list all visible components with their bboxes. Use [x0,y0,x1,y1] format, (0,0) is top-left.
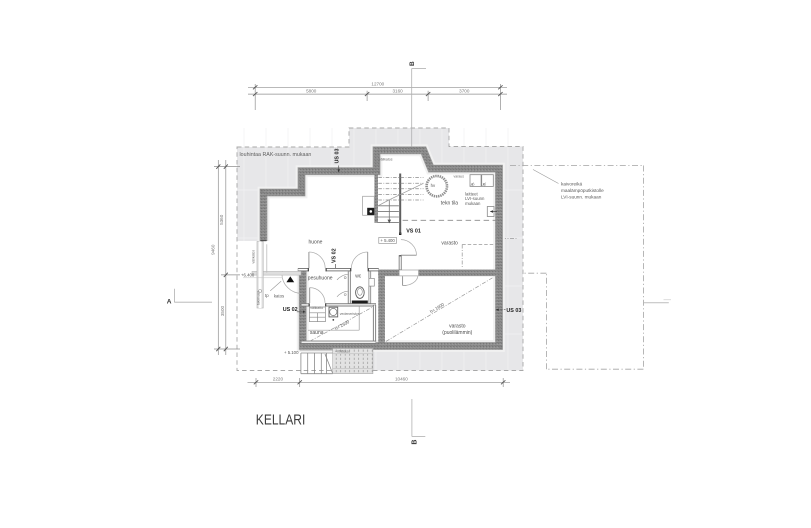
svg-text:+ritilätaso: +ritilätaso [335,350,350,354]
svg-text:3700: 3700 [459,88,470,93]
svg-text:B: B [409,61,416,66]
svg-text:tekn tila: tekn tila [441,201,458,207]
svg-text:ilp: ilp [483,182,487,186]
svg-text:louhintaa RAK-suunn. mukaan: louhintaa RAK-suunn. mukaan [240,152,312,158]
svg-text:välikatos: välikatos [252,250,256,264]
svg-text:+6.400: +6.400 [241,273,255,278]
svg-text:A: A [167,298,172,305]
svg-text:pesuhuone: pesuhuone [308,276,333,282]
svg-text:välikatto: välikatto [310,306,323,310]
svg-text:mukaan: mukaan [465,201,481,206]
svg-text:LVI-suunn. mukaan: LVI-suunn. mukaan [561,195,602,200]
svg-text:2220: 2220 [273,377,284,382]
svg-text:US 03: US 03 [335,149,341,164]
svg-text:katos: katos [274,294,284,299]
svg-text:tp: tp [265,293,269,298]
svg-text:+ 5.100: + 5.100 [284,350,299,355]
svg-text:5360: 5360 [219,214,224,225]
svg-text:US 03: US 03 [506,308,521,314]
svg-text:(puolilämmin): (puolilämmin) [442,330,472,336]
svg-text:5800: 5800 [306,88,317,93]
svg-text:huone: huone [309,240,323,246]
svg-text:vedeneristys: vedeneristys [340,312,360,316]
svg-text:tukimuuri: tukimuuri [256,291,260,305]
svg-text:maalämpöputkistolle: maalämpöputkistolle [561,188,604,193]
svg-text:ilp: ilp [471,182,475,186]
svg-text:varaus: varaus [454,175,465,179]
svg-text:3160: 3160 [392,88,403,93]
svg-text:varasto: varasto [449,323,466,329]
svg-text:9460: 9460 [211,244,216,255]
svg-text:VS 01: VS 01 [406,229,421,235]
svg-text:US 02: US 02 [283,307,298,313]
svg-text:VS 02: VS 02 [332,248,338,263]
svg-text:12700: 12700 [371,82,384,87]
svg-text:varasto: varasto [441,240,458,246]
svg-text:sauna: sauna [310,330,324,336]
svg-text:wc: wc [355,273,362,279]
svg-text:kaivoreikä: kaivoreikä [561,182,582,187]
svg-text:10460: 10460 [395,377,408,382]
svg-text:KELLARI: KELLARI [256,411,305,428]
svg-text:B: B [412,440,419,445]
svg-text:3500: 3500 [220,305,225,316]
svg-text:+ 5.400: + 5.400 [380,238,395,243]
svg-text:välikatos: välikatos [379,157,393,161]
